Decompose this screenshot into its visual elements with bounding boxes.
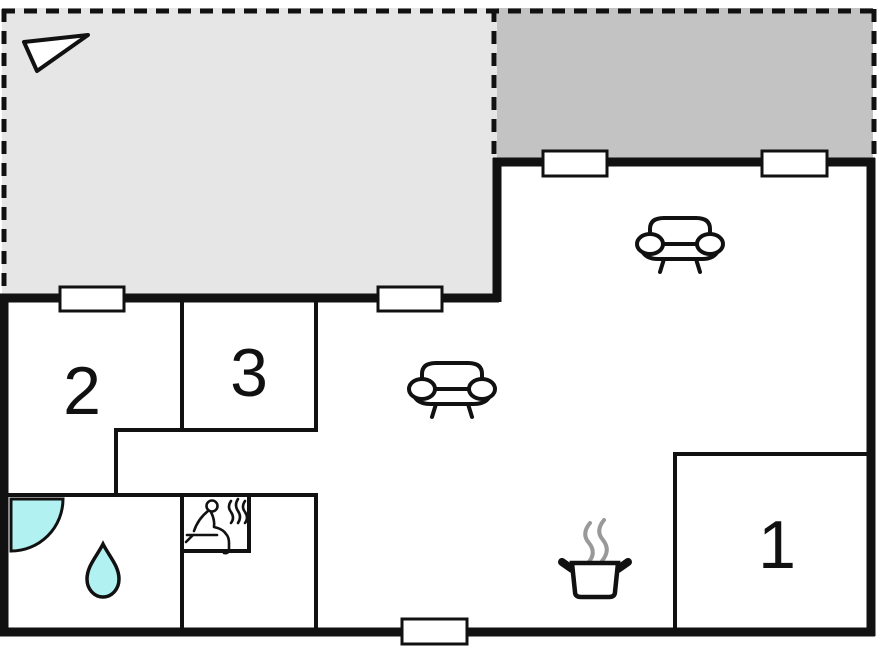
sofa-armrest bbox=[469, 379, 495, 399]
window bbox=[402, 619, 467, 644]
terrace-upper-right bbox=[497, 8, 873, 164]
room-label-3: 3 bbox=[230, 335, 268, 411]
sofa-armrest bbox=[409, 379, 435, 399]
room-label-1: 1 bbox=[758, 507, 796, 583]
pot-body bbox=[572, 563, 618, 597]
water-drop-icon bbox=[87, 544, 119, 597]
window bbox=[60, 287, 124, 311]
sofa-armrest bbox=[697, 234, 723, 254]
cooking-pot-icon bbox=[562, 520, 628, 597]
sauna-person-leg bbox=[211, 512, 229, 553]
steam-icon bbox=[585, 523, 593, 563]
floor-plan-canvas: 1 2 3 bbox=[0, 0, 879, 652]
sauna-bench bbox=[186, 535, 217, 542]
sofa-icon bbox=[637, 218, 723, 272]
floor-plan: 1 2 3 bbox=[0, 0, 879, 652]
sofa-armrest bbox=[637, 234, 663, 254]
room-label-2: 2 bbox=[63, 353, 101, 429]
window bbox=[762, 151, 827, 176]
window bbox=[543, 151, 607, 176]
heat-waves-icon bbox=[229, 499, 247, 523]
shower-quarter-circle-icon bbox=[11, 499, 63, 551]
sofa-icon bbox=[409, 363, 495, 417]
window bbox=[378, 287, 442, 311]
terrace-upper-left bbox=[2, 8, 497, 300]
sauna-person-icon bbox=[186, 499, 247, 553]
steam-icon bbox=[599, 520, 607, 561]
sauna-person-back bbox=[194, 511, 208, 531]
